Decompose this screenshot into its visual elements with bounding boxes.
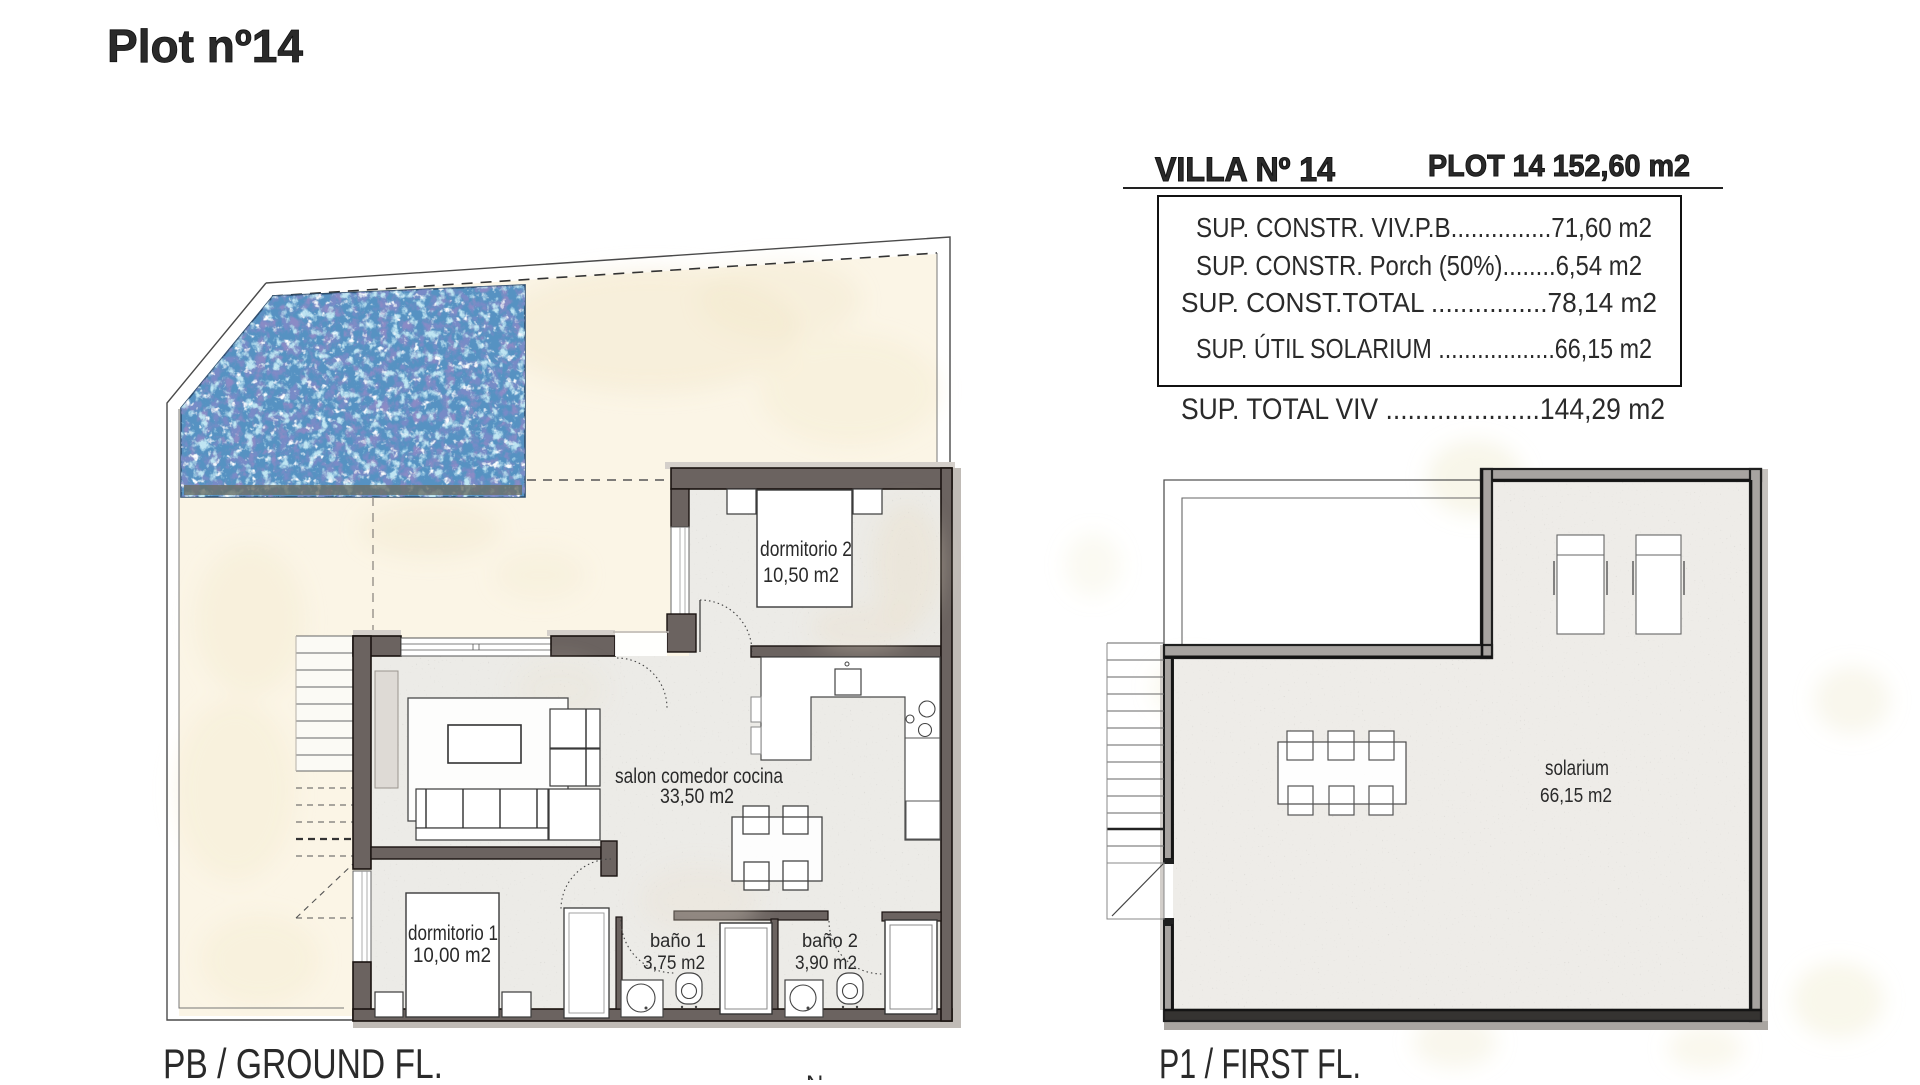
svg-text:33,50 m2: 33,50 m2 — [660, 785, 734, 808]
svg-text:SUP. ÚTIL SOLARIUM ...........: SUP. ÚTIL SOLARIUM ..................66,… — [1196, 333, 1652, 364]
svg-text:baño 2: baño 2 — [802, 931, 858, 952]
svg-text:66,15 m2: 66,15 m2 — [1540, 785, 1612, 807]
svg-text:SUP. CONSTR. Porch (50%)......: SUP. CONSTR. Porch (50%)........6,54 m2 — [1196, 250, 1642, 281]
svg-text:baño 1: baño 1 — [650, 931, 706, 952]
svg-text:Plot nº14: Plot nº14 — [107, 20, 303, 72]
svg-text:PLOT 14 152,60 m2: PLOT 14 152,60 m2 — [1428, 148, 1690, 183]
svg-text:SUP. CONST.TOTAL .............: SUP. CONST.TOTAL ................78,14 m… — [1181, 287, 1657, 318]
svg-text:dormitorio 1: dormitorio 1 — [408, 922, 498, 945]
svg-text:VILLA Nº 14: VILLA Nº 14 — [1155, 151, 1335, 189]
svg-text:N: N — [806, 1071, 823, 1080]
svg-text:P1 / FIRST FL.: P1 / FIRST FL. — [1159, 1040, 1361, 1080]
svg-text:3,75 m2: 3,75 m2 — [643, 953, 705, 974]
svg-text:SUP. TOTAL VIV ...............: SUP. TOTAL VIV .....................144,… — [1181, 393, 1665, 426]
svg-text:10,00 m2: 10,00 m2 — [413, 944, 491, 967]
svg-text:dormitorio 2: dormitorio 2 — [760, 538, 852, 561]
svg-text:10,50 m2: 10,50 m2 — [763, 564, 839, 587]
svg-text:solarium: solarium — [1545, 757, 1609, 780]
svg-text:PB / GROUND FL.: PB / GROUND FL. — [163, 1040, 443, 1080]
svg-text:3,90 m2: 3,90 m2 — [795, 953, 857, 974]
svg-text:SUP. CONSTR. VIV.P.B..........: SUP. CONSTR. VIV.P.B...............71,60… — [1196, 212, 1652, 243]
